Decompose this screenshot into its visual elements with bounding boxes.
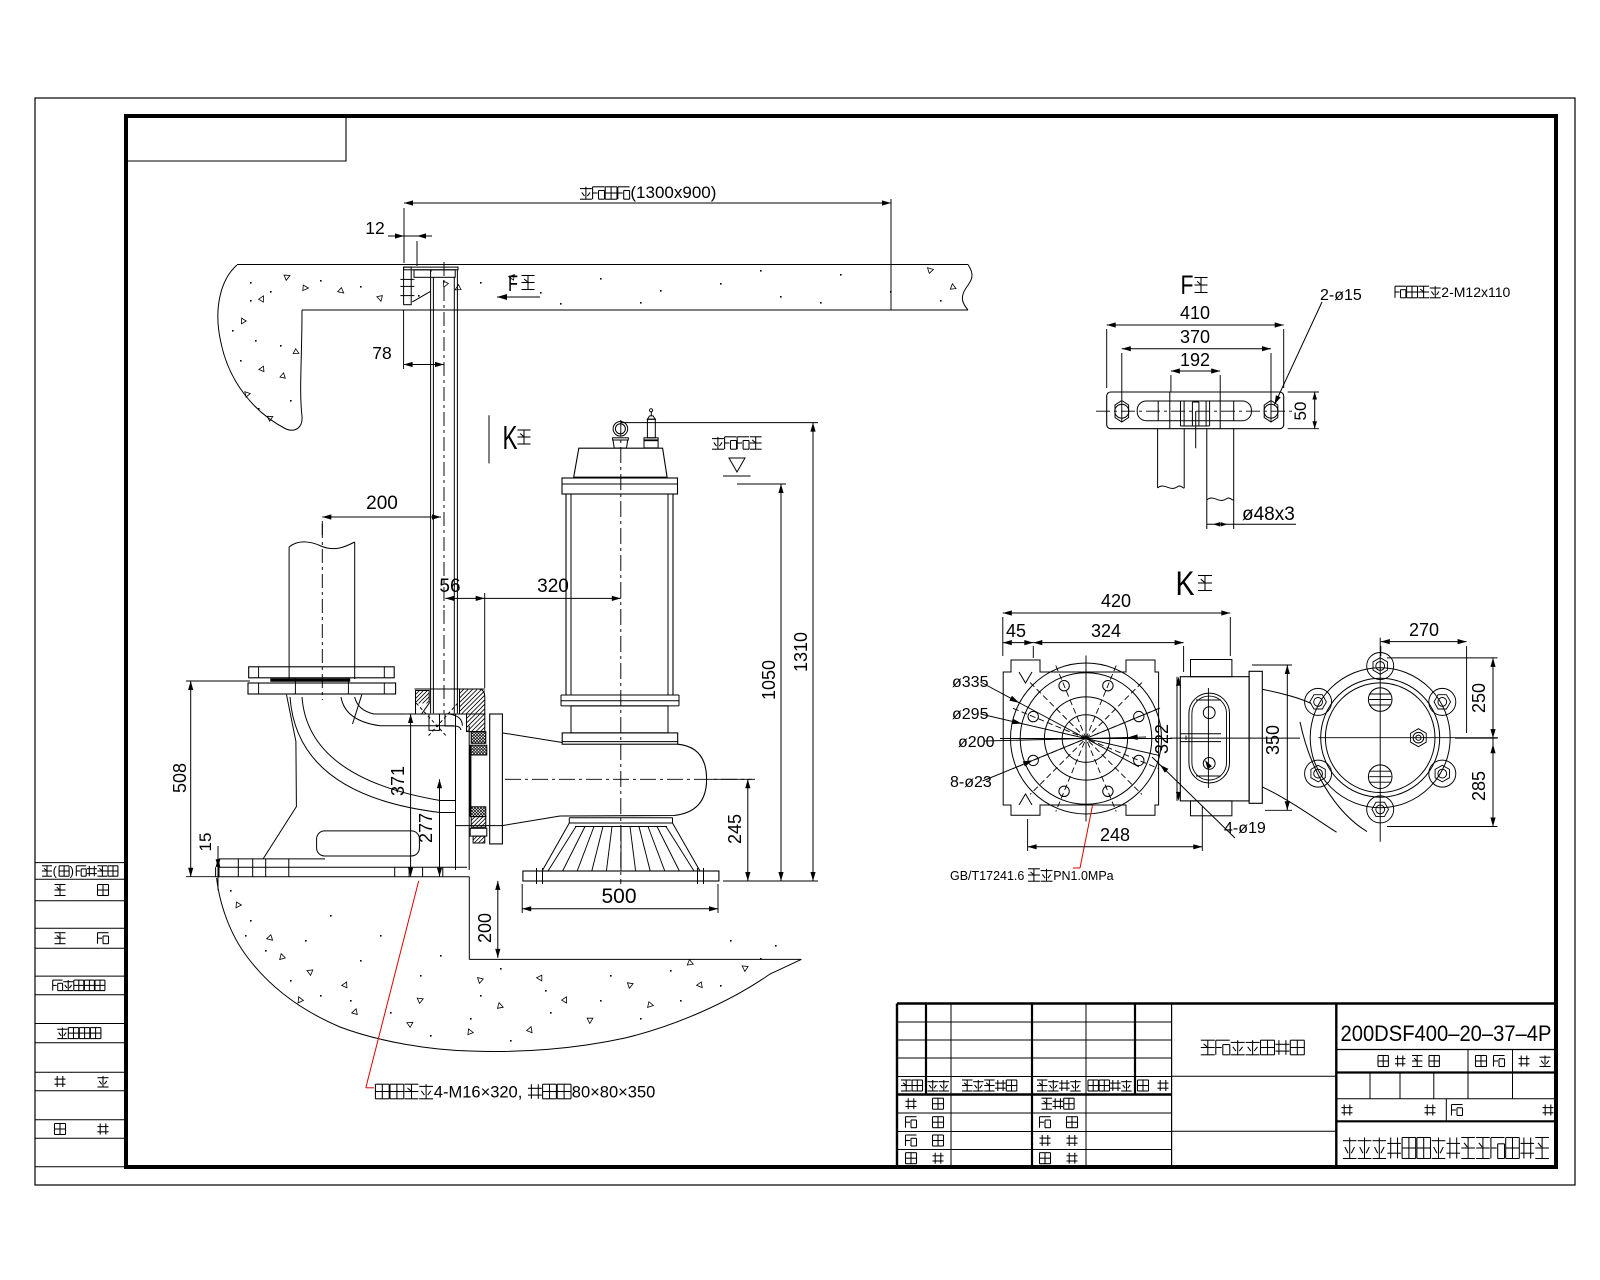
svg-text:12: 12 xyxy=(365,218,384,238)
svg-text:K: K xyxy=(1176,565,1195,603)
svg-text:): ) xyxy=(70,864,74,878)
svg-text:200: 200 xyxy=(366,493,398,514)
svg-text:4-ø19: 4-ø19 xyxy=(1224,820,1266,837)
svg-text:F: F xyxy=(1181,270,1194,300)
svg-text:200: 200 xyxy=(475,913,495,943)
svg-text:250: 250 xyxy=(1469,683,1489,713)
svg-text:371: 371 xyxy=(388,766,408,796)
svg-text:320: 320 xyxy=(537,576,569,597)
svg-text:245: 245 xyxy=(725,814,745,844)
svg-text:F: F xyxy=(508,271,518,296)
svg-text:ø295: ø295 xyxy=(952,706,989,723)
svg-text:ø335: ø335 xyxy=(952,674,989,691)
svg-text:GB/T17241.6: GB/T17241.6 xyxy=(950,869,1028,883)
svg-text:370: 370 xyxy=(1180,327,1210,347)
svg-text:PN1.0MPa: PN1.0MPa xyxy=(1053,869,1113,883)
svg-text:(1300x900): (1300x900) xyxy=(630,183,716,202)
svg-text:4-M16×320,: 4-M16×320, xyxy=(434,1084,523,1102)
svg-text:324: 324 xyxy=(1091,621,1121,641)
svg-text:277: 277 xyxy=(416,813,436,843)
svg-text:K: K xyxy=(503,419,518,456)
svg-text:ø48x3: ø48x3 xyxy=(1242,504,1295,525)
svg-text:45: 45 xyxy=(1006,621,1026,641)
svg-text:500: 500 xyxy=(601,885,636,908)
svg-text:2-ø15: 2-ø15 xyxy=(1320,287,1362,304)
svg-text:200DSF400–20–37–4P: 200DSF400–20–37–4P xyxy=(1341,1021,1552,1046)
svg-text:410: 410 xyxy=(1180,303,1210,323)
svg-text:508: 508 xyxy=(170,763,190,793)
svg-text:8-ø23: 8-ø23 xyxy=(950,774,992,791)
svg-text:2-M12x110: 2-M12x110 xyxy=(1441,284,1510,300)
svg-text:270: 270 xyxy=(1409,620,1439,640)
svg-text:78: 78 xyxy=(372,343,391,363)
svg-text:420: 420 xyxy=(1101,591,1131,611)
svg-text:322: 322 xyxy=(1152,724,1172,754)
svg-text:248: 248 xyxy=(1100,825,1130,845)
svg-text:1310: 1310 xyxy=(791,632,811,672)
svg-text:1050: 1050 xyxy=(759,660,779,700)
svg-text:192: 192 xyxy=(1180,350,1210,370)
svg-text:15: 15 xyxy=(196,833,215,852)
svg-text:56: 56 xyxy=(439,576,460,597)
svg-text:80×80×350: 80×80×350 xyxy=(572,1084,656,1102)
svg-text:ø200: ø200 xyxy=(958,734,995,751)
svg-text:285: 285 xyxy=(1469,771,1489,801)
svg-text:50: 50 xyxy=(1291,402,1310,421)
svg-text:350: 350 xyxy=(1263,725,1283,755)
